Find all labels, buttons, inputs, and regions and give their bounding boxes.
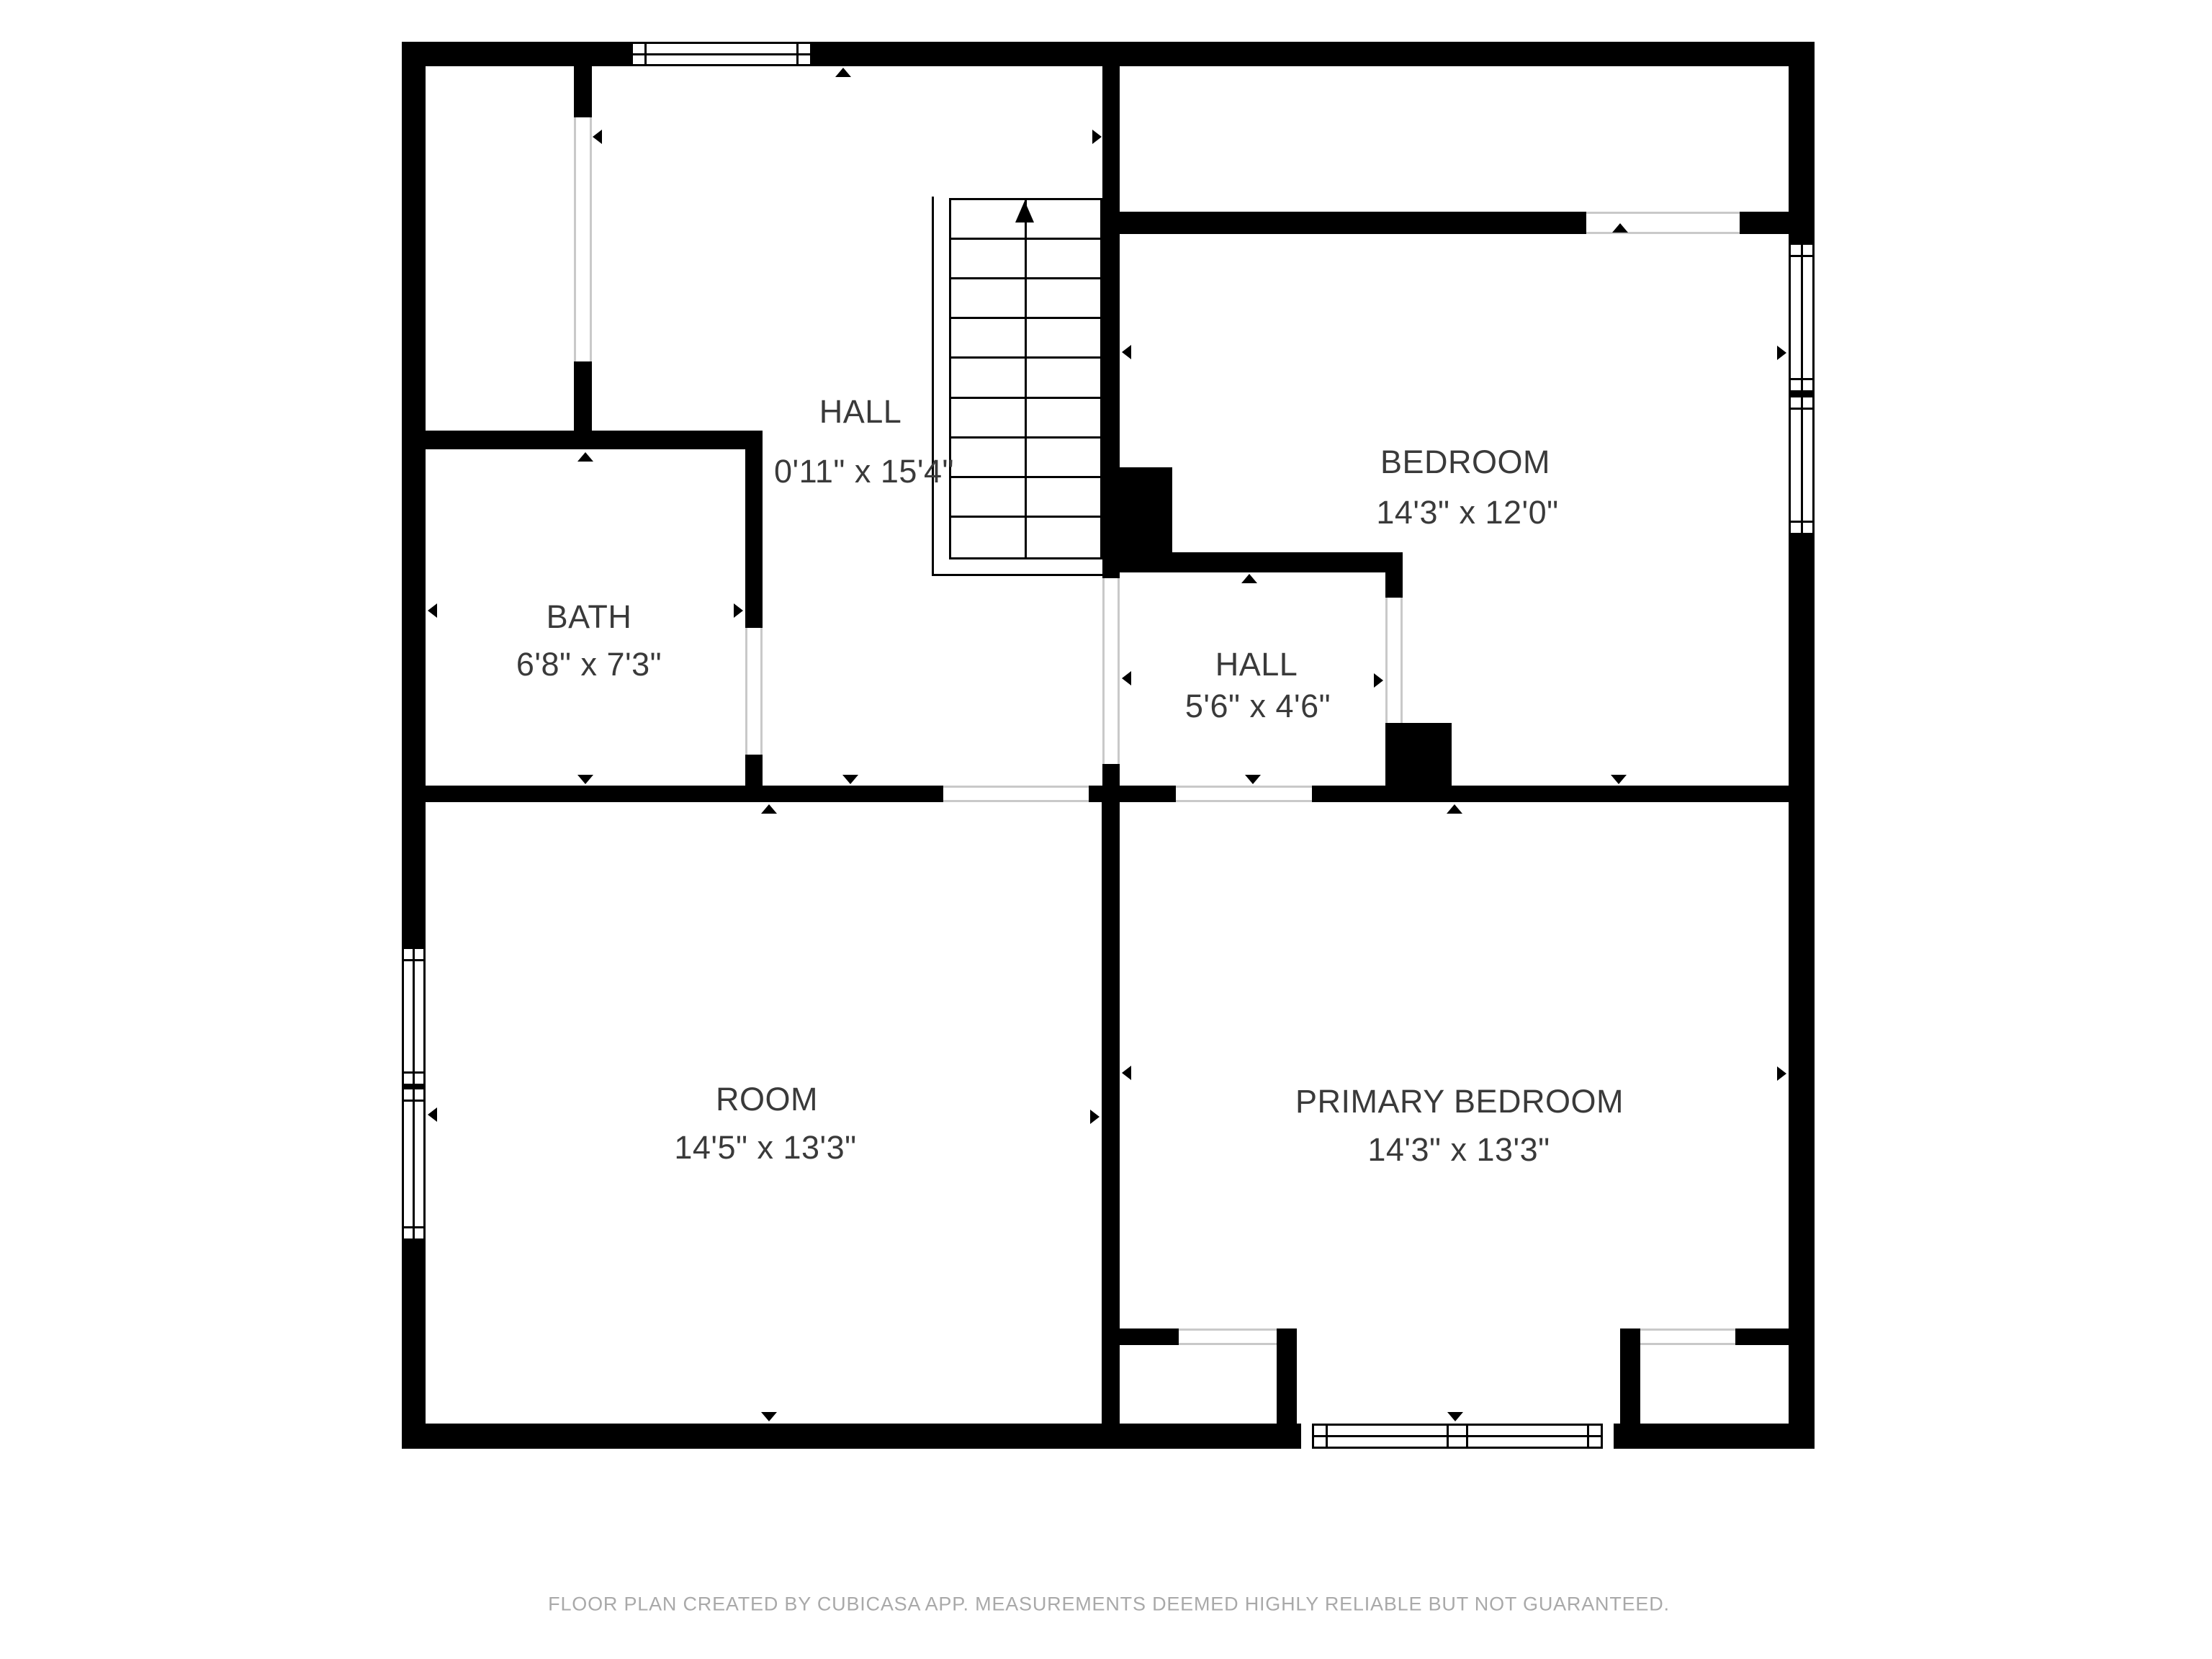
room-label-room-name: ROOM <box>716 1081 818 1118</box>
dimension-arrow-icon <box>1612 223 1628 233</box>
window-top <box>631 42 812 66</box>
door-gap-closet1 <box>1179 1328 1277 1331</box>
room-label-bath-name: BATH <box>547 598 632 636</box>
dimension-arrow-icon <box>1374 673 1383 688</box>
floor-plan: HALL 0'11" x 15'4" BEDROOM 14'3" x 12'0"… <box>0 0 2212 1659</box>
dimension-arrow-icon <box>1777 1066 1786 1081</box>
dimension-arrow-icon <box>761 1412 777 1421</box>
window-left-1 <box>402 947 426 1086</box>
dimension-arrow-icon <box>1241 574 1257 583</box>
door-gap-closet <box>574 117 576 361</box>
door-gap-hall-room <box>943 786 1089 788</box>
door-gap-closet <box>590 117 592 361</box>
wall-bedroom-top-left <box>1120 212 1586 234</box>
dimension-arrow-icon <box>734 603 743 618</box>
wall-divider-right <box>1312 786 1789 802</box>
door-gap-bath <box>760 628 763 755</box>
window-bottom <box>1312 1424 1603 1449</box>
dimension-arrow-icon <box>1092 130 1102 144</box>
dimension-arrow-icon <box>1245 775 1261 784</box>
wall-bath-right-upper <box>745 449 763 628</box>
dimension-arrow-icon <box>835 68 851 77</box>
room-label-hall-upper-name: HALL <box>819 393 902 431</box>
wall-closet1-right <box>1277 1328 1297 1424</box>
wall-bedroom-top-right <box>1740 212 1789 234</box>
door-gap-hall-lower-left <box>1118 578 1120 764</box>
dimension-arrow-icon <box>577 775 593 784</box>
wall-closet2-top <box>1735 1328 1789 1345</box>
wall-hall-lower-right-top <box>1385 572 1403 598</box>
stairs-outline-left <box>932 197 934 576</box>
door-gap-bedroom-top <box>1586 232 1740 234</box>
wall-room-divider <box>1102 802 1120 1424</box>
dimension-arrow-icon <box>1122 671 1131 685</box>
wall-block-stairs <box>1102 467 1172 552</box>
wall-hall-lower-top <box>1102 552 1403 572</box>
door-gap-hall-lower-left <box>1102 578 1105 764</box>
window-left-2 <box>402 1087 426 1241</box>
dimension-arrow-icon <box>428 1107 437 1122</box>
room-label-bedroom-name: BEDROOM <box>1380 444 1550 481</box>
door-gap-hall-lower-bottom <box>1176 800 1312 802</box>
wall-divider-left <box>426 786 943 802</box>
stairs-outline-bottom <box>932 574 1102 576</box>
room-label-bedroom-dims: 14'3" x 12'0" <box>1376 494 1558 531</box>
stairs-up-arrow-icon <box>1015 201 1034 222</box>
door-gap-hall-room <box>943 800 1089 802</box>
caption-text: FLOOR PLAN CREATED BY CUBICASA APP. MEAS… <box>548 1593 1670 1616</box>
room-label-hall-upper-dims: 0'11" x 15'4" <box>774 453 954 490</box>
dimension-arrow-icon <box>1090 1110 1100 1124</box>
door-gap-closet1 <box>1179 1343 1277 1345</box>
dimension-arrow-icon <box>842 775 858 784</box>
stairs-walk-line <box>1025 200 1027 557</box>
window-bottom-margin <box>1301 1424 1312 1449</box>
dimension-arrow-icon <box>1777 346 1786 360</box>
wall-divider-middle <box>1089 786 1176 802</box>
door-gap-closet2 <box>1640 1343 1735 1345</box>
dimension-arrow-icon <box>577 452 593 462</box>
dimension-arrow-icon <box>428 603 437 618</box>
wall-closet-lower <box>574 361 592 431</box>
door-gap-hall-lower-right <box>1385 598 1388 723</box>
door-gap-closet2 <box>1640 1328 1735 1331</box>
dimension-arrow-icon <box>1611 775 1627 784</box>
room-label-hall-lower-dims: 5'6" x 4'6" <box>1185 688 1331 725</box>
dimension-arrow-icon <box>761 804 777 814</box>
stairs-treads <box>949 198 1102 559</box>
wall-bath-top <box>426 431 763 449</box>
dimension-arrow-icon <box>1122 1066 1131 1080</box>
room-label-hall-lower-name: HALL <box>1215 646 1298 683</box>
wall-closet-upper <box>574 66 592 117</box>
door-gap-bath <box>745 628 747 755</box>
door-gap-hall-lower-right <box>1401 598 1403 723</box>
room-label-primary-dims: 14'3" x 13'3" <box>1367 1131 1550 1169</box>
window-right-1 <box>1789 243 1815 392</box>
dimension-arrow-icon <box>1447 804 1462 814</box>
dimension-arrow-icon <box>593 130 602 144</box>
dimension-arrow-icon <box>1122 345 1131 359</box>
wall-hall-lower-block <box>1385 723 1452 786</box>
room-label-bath-dims: 6'8" x 7'3" <box>516 646 662 683</box>
door-gap-hall-lower-bottom <box>1176 786 1312 788</box>
wall-bath-right-lower <box>745 755 763 786</box>
dimension-arrow-icon <box>1447 1412 1463 1421</box>
wall-closet2-left <box>1620 1328 1640 1424</box>
room-label-primary-name: PRIMARY BEDROOM <box>1295 1083 1624 1120</box>
door-gap-bedroom-top <box>1586 212 1740 214</box>
window-right-2 <box>1789 395 1815 535</box>
window-bottom-margin <box>1603 1424 1614 1449</box>
room-label-room-dims: 14'5" x 13'3" <box>674 1129 856 1166</box>
outer-wall-top <box>402 42 1815 66</box>
wall-closet1-top <box>1120 1328 1179 1345</box>
wall-hall-lower-left-btm <box>1102 764 1120 786</box>
